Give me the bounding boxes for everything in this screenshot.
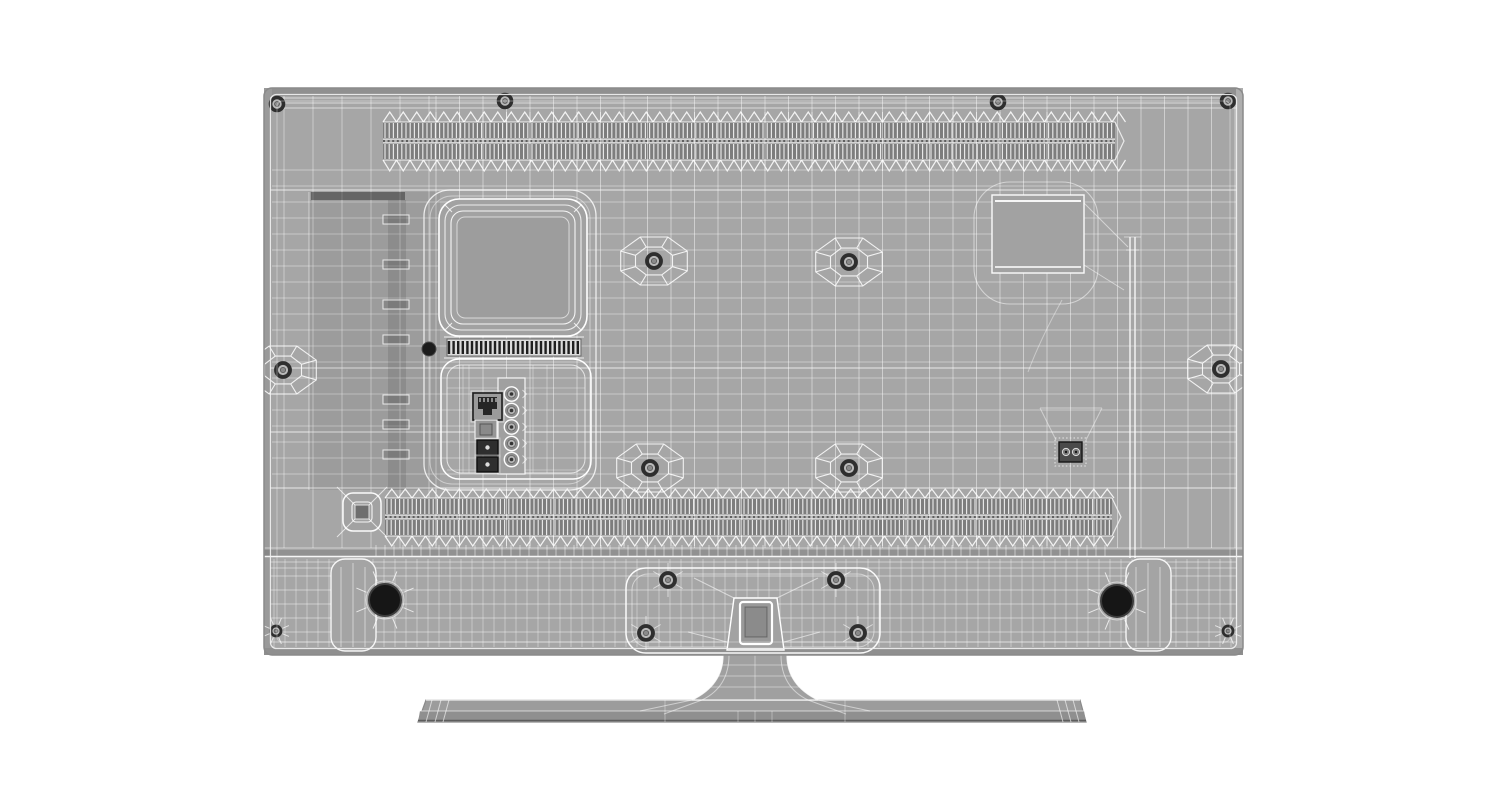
left-recess [309, 192, 440, 490]
control-button-pad [337, 487, 387, 537]
power-dot [422, 342, 436, 356]
stand-base [418, 700, 1086, 722]
ethernet-port [471, 391, 504, 422]
wireframe-canvas [0, 0, 1500, 811]
screw [992, 96, 1005, 109]
digital-port [475, 438, 500, 457]
digital-port [475, 455, 500, 474]
stand-neck [692, 655, 818, 700]
tv-back-render [0, 0, 1500, 811]
av-port [475, 420, 497, 439]
heatsink-fin-strip [444, 337, 584, 358]
main-board-housing [439, 199, 587, 336]
